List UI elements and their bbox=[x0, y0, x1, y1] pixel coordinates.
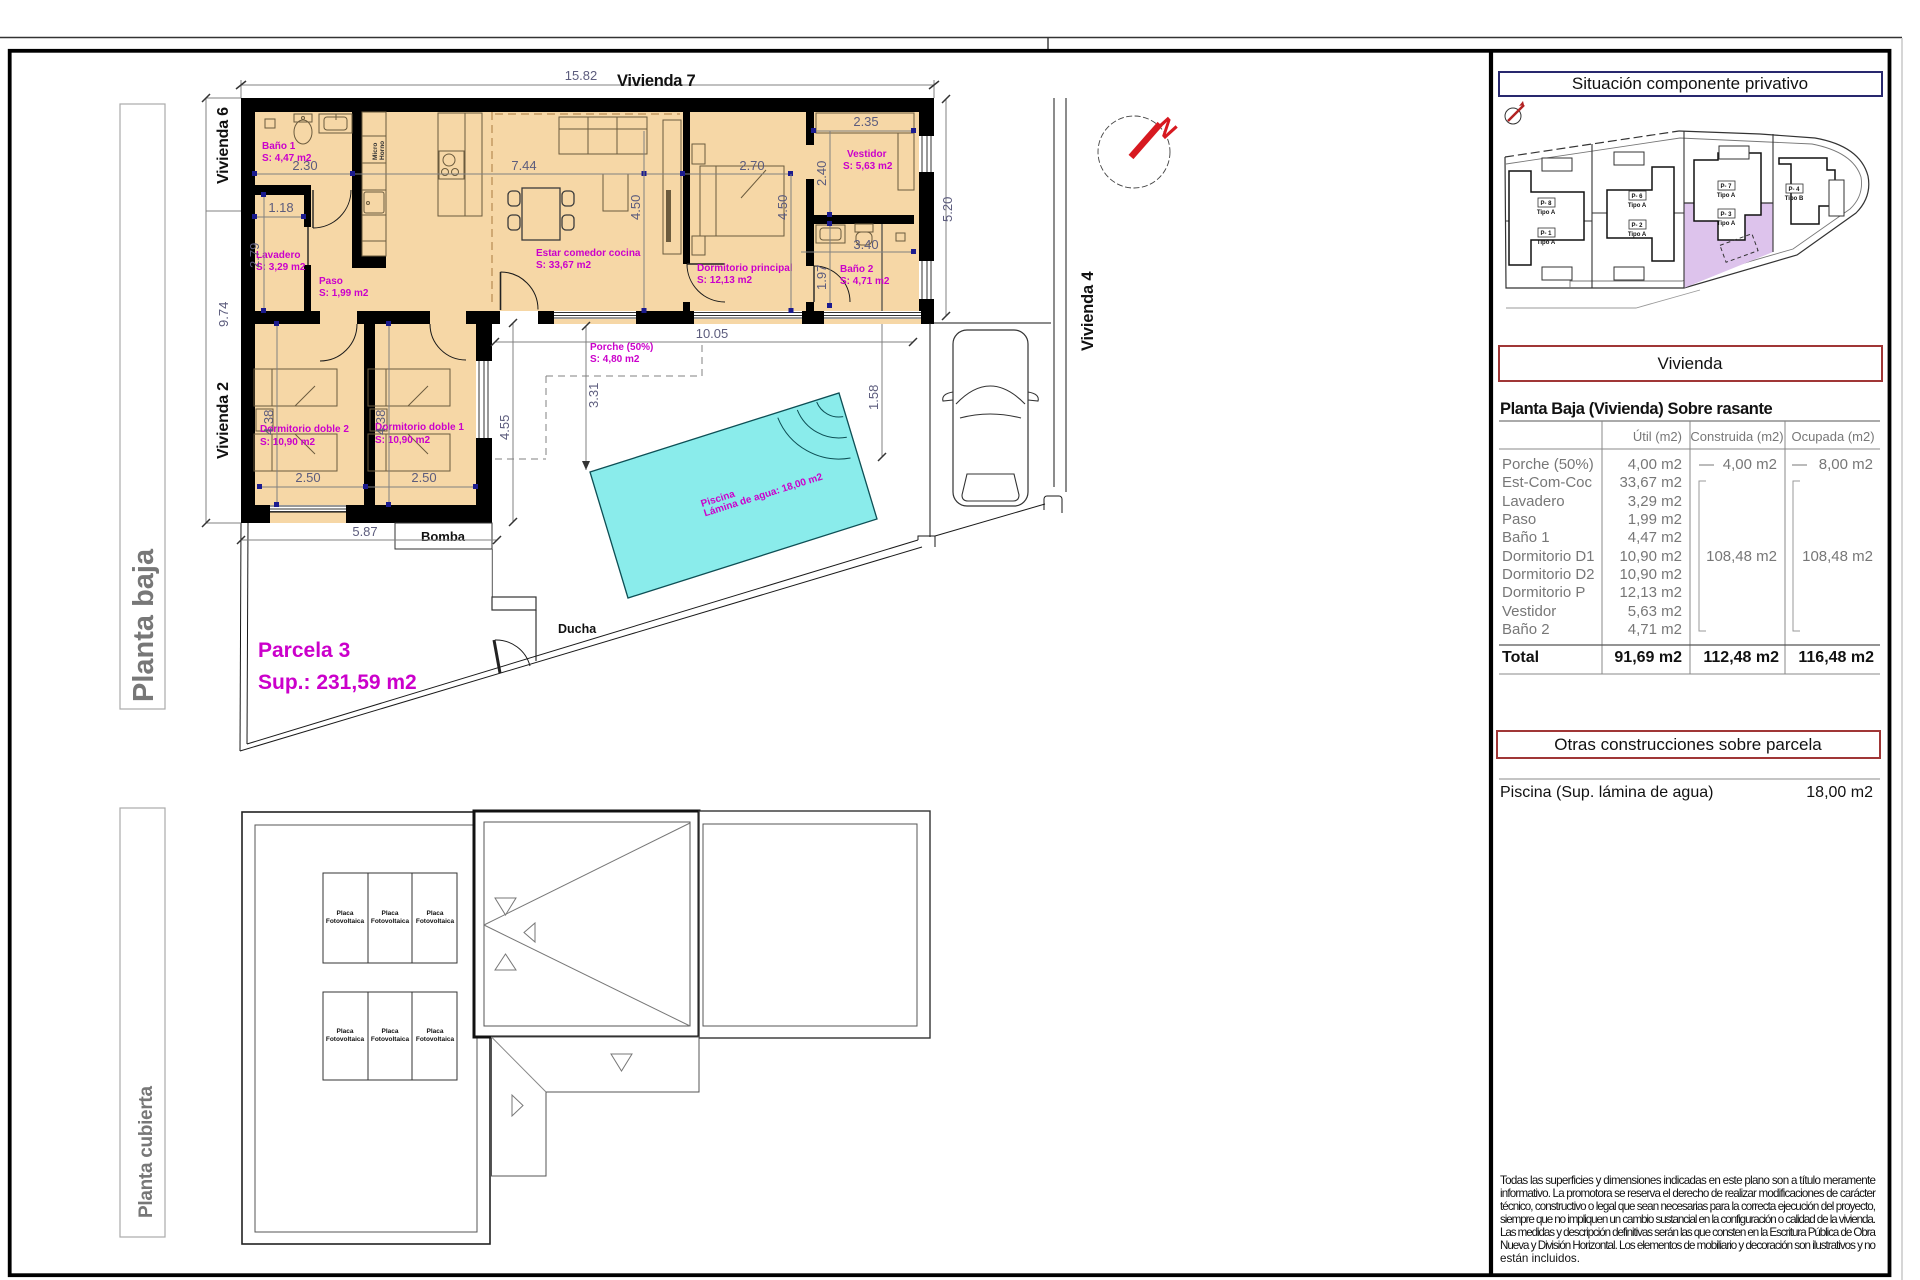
svg-text:Situación componente privativo: Situación componente privativo bbox=[1572, 74, 1808, 93]
svg-text:91,69 m2: 91,69 m2 bbox=[1614, 649, 1682, 666]
svg-text:Vivienda 6: Vivienda 6 bbox=[215, 107, 232, 184]
svg-text:P- 7: P- 7 bbox=[1720, 184, 1732, 190]
svg-text:están incluidos.: están incluidos. bbox=[1500, 1252, 1580, 1265]
svg-text:4,71 m2: 4,71 m2 bbox=[1628, 621, 1682, 638]
svg-text:siempre que no impliquen un ca: siempre que no impliquen un cambio susta… bbox=[1500, 1213, 1876, 1226]
svg-text:Las medidas y descripción defi: Las medidas y descripción definitivas se… bbox=[1500, 1226, 1877, 1239]
svg-text:10,90 m2: 10,90 m2 bbox=[1619, 566, 1682, 583]
svg-text:3,29 m2: 3,29 m2 bbox=[1628, 493, 1682, 510]
svg-text:1.18: 1.18 bbox=[268, 200, 293, 215]
svg-text:112,48 m2: 112,48 m2 bbox=[1703, 649, 1779, 666]
svg-text:116,48 m2: 116,48 m2 bbox=[1798, 649, 1874, 666]
svg-text:4,00 m2: 4,00 m2 bbox=[1723, 456, 1777, 473]
svg-text:Vivienda 7: Vivienda 7 bbox=[617, 72, 695, 90]
svg-text:MicroHorno: MicroHorno bbox=[372, 141, 386, 160]
svg-text:108,48 m2: 108,48 m2 bbox=[1706, 548, 1777, 565]
svg-text:Otras construcciones sobre par: Otras construcciones sobre parcela bbox=[1554, 735, 1822, 754]
svg-text:2.50: 2.50 bbox=[295, 470, 320, 485]
svg-text:3.40: 3.40 bbox=[853, 237, 878, 252]
svg-text:2.30: 2.30 bbox=[292, 158, 317, 173]
svg-text:Sup.: 231,59 m2: Sup.: 231,59 m2 bbox=[258, 671, 417, 694]
svg-text:—: — bbox=[1699, 456, 1714, 473]
svg-text:Baño 2: Baño 2 bbox=[1502, 621, 1550, 638]
svg-text:P- 1: P- 1 bbox=[1540, 231, 1552, 237]
svg-text:2.70: 2.70 bbox=[739, 158, 764, 173]
svg-text:—: — bbox=[1792, 456, 1807, 473]
svg-text:4,47 m2: 4,47 m2 bbox=[1628, 529, 1682, 546]
svg-text:33,67 m2: 33,67 m2 bbox=[1619, 474, 1682, 491]
svg-text:P- 6: P- 6 bbox=[1631, 194, 1643, 200]
svg-text:Vivienda 2: Vivienda 2 bbox=[215, 382, 232, 459]
svg-text:9.74: 9.74 bbox=[216, 302, 231, 327]
svg-text:Útil (m2): Útil (m2) bbox=[1633, 429, 1682, 444]
svg-text:5,63 m2: 5,63 m2 bbox=[1628, 603, 1682, 620]
svg-text:4.38: 4.38 bbox=[261, 410, 276, 435]
svg-text:Tipo A: Tipo A bbox=[1537, 210, 1556, 216]
svg-text:Dormitorio D1: Dormitorio D1 bbox=[1502, 548, 1595, 565]
svg-text:P- 8: P- 8 bbox=[1540, 201, 1552, 207]
svg-text:Total: Total bbox=[1502, 649, 1539, 666]
svg-text:VestidorS: 5,63 m2: VestidorS: 5,63 m2 bbox=[843, 149, 893, 172]
svg-text:Est-Com-Coc: Est-Com-Coc bbox=[1502, 474, 1593, 491]
svg-text:18,00 m2: 18,00 m2 bbox=[1806, 784, 1873, 801]
svg-text:técnico, constructivo o legal: técnico, constructivo o legal que sean n… bbox=[1500, 1200, 1876, 1213]
svg-text:Dormitorio P: Dormitorio P bbox=[1502, 584, 1585, 601]
svg-text:Baño 1: Baño 1 bbox=[1502, 529, 1550, 546]
svg-text:LavaderoS: 3,29 m2: LavaderoS: 3,29 m2 bbox=[256, 250, 306, 273]
svg-text:Todas las superficies y dimens: Todas las superficies y dimensiones indi… bbox=[1500, 1174, 1876, 1187]
svg-text:108,48 m2: 108,48 m2 bbox=[1802, 548, 1873, 565]
svg-text:2.35: 2.35 bbox=[853, 114, 878, 129]
svg-text:Dormitorio D2: Dormitorio D2 bbox=[1502, 566, 1595, 583]
svg-text:1.58: 1.58 bbox=[866, 385, 881, 410]
svg-text:10,90 m2: 10,90 m2 bbox=[1619, 548, 1682, 565]
svg-text:Porche (50%): Porche (50%) bbox=[1502, 456, 1594, 473]
svg-text:P- 3: P- 3 bbox=[1720, 212, 1732, 218]
svg-text:informativo. La promotora se r: informativo. La promotora se reserva el … bbox=[1500, 1187, 1876, 1200]
svg-text:2.79: 2.79 bbox=[247, 243, 262, 268]
svg-text:Bomba: Bomba bbox=[421, 529, 466, 544]
svg-text:Parcela 3: Parcela 3 bbox=[258, 639, 350, 662]
svg-text:Planta Baja (Vivienda) Sobre r: Planta Baja (Vivienda) Sobre rasante bbox=[1500, 400, 1773, 418]
svg-text:Tipo A: Tipo A bbox=[1628, 232, 1647, 238]
svg-text:4.38: 4.38 bbox=[373, 410, 388, 435]
svg-text:Vestidor: Vestidor bbox=[1502, 603, 1556, 620]
svg-text:4.50: 4.50 bbox=[775, 195, 790, 220]
svg-text:Tipo A: Tipo A bbox=[1717, 221, 1736, 227]
svg-text:4,00 m2: 4,00 m2 bbox=[1628, 456, 1682, 473]
svg-text:Piscina (Sup. lámina de agua): Piscina (Sup. lámina de agua) bbox=[1500, 784, 1713, 801]
svg-text:15.82: 15.82 bbox=[565, 68, 598, 83]
svg-text:10.05: 10.05 bbox=[696, 326, 729, 341]
svg-text:Lavadero: Lavadero bbox=[1502, 493, 1565, 510]
svg-text:Tipo B: Tipo B bbox=[1785, 196, 1804, 202]
svg-text:P- 4: P- 4 bbox=[1788, 187, 1800, 193]
svg-text:1.97: 1.97 bbox=[814, 265, 829, 290]
svg-text:8,00 m2: 8,00 m2 bbox=[1819, 456, 1873, 473]
svg-text:Vivienda: Vivienda bbox=[1658, 354, 1723, 373]
svg-text:Tipo A: Tipo A bbox=[1717, 193, 1736, 199]
svg-text:3.31: 3.31 bbox=[586, 383, 601, 408]
svg-text:Construida (m2): Construida (m2) bbox=[1690, 429, 1783, 444]
svg-text:Tipo A: Tipo A bbox=[1628, 203, 1647, 209]
svg-text:12,13 m2: 12,13 m2 bbox=[1619, 584, 1682, 601]
svg-text:Paso: Paso bbox=[1502, 511, 1536, 528]
svg-text:7.44: 7.44 bbox=[511, 158, 536, 173]
svg-text:5.20: 5.20 bbox=[940, 197, 955, 222]
svg-text:Nueva y División Horizontal. L: Nueva y División Horizontal. Los element… bbox=[1500, 1239, 1876, 1252]
svg-text:Planta baja: Planta baja bbox=[128, 548, 160, 702]
svg-text:2.40: 2.40 bbox=[814, 161, 829, 186]
svg-text:Vivienda 4: Vivienda 4 bbox=[1079, 271, 1097, 351]
svg-text:Ducha: Ducha bbox=[558, 622, 597, 636]
svg-text:Tipo A: Tipo A bbox=[1537, 240, 1556, 246]
svg-text:Planta cubierta: Planta cubierta bbox=[136, 1086, 157, 1218]
svg-text:P- 2: P- 2 bbox=[1631, 223, 1643, 229]
svg-text:1,99 m2: 1,99 m2 bbox=[1628, 511, 1682, 528]
svg-text:4.55: 4.55 bbox=[497, 415, 512, 440]
svg-text:4.50: 4.50 bbox=[628, 195, 643, 220]
svg-text:Ocupada (m2): Ocupada (m2) bbox=[1791, 429, 1874, 444]
svg-text:2.50: 2.50 bbox=[411, 470, 436, 485]
svg-text:5.87: 5.87 bbox=[352, 524, 377, 539]
